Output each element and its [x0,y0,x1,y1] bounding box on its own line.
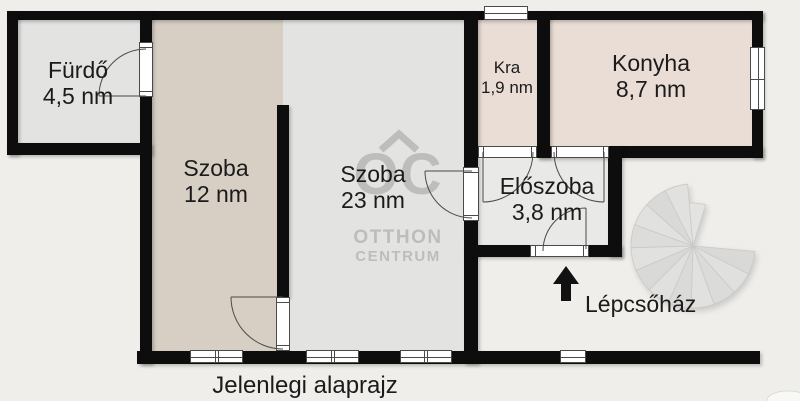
window-stairwell [560,350,586,363]
door-szoba12-szoba23 [276,297,290,351]
room-name: Kra [494,58,520,78]
room-area: 4,5 nm [43,83,113,109]
room-name: Előszoba [500,173,595,199]
door-furdo [139,42,153,97]
watermark-line2: CENTRUM [338,248,458,265]
room-name: Konyha [612,50,690,76]
room-area: 12 nm [184,181,248,207]
wall-top [7,11,763,20]
room-area: 3,8 nm [512,199,582,225]
corner-artifact [767,391,800,401]
floor-plan: OC OTTHON CENTRUM [0,0,800,401]
room-name: Szoba [340,161,405,187]
room-name: Fürdő [48,57,108,83]
door-konyha [551,146,609,158]
window-szoba23-left [306,350,359,363]
room-label-szoba23: Szoba 23 nm [298,161,448,213]
room-name: Szoba [183,155,248,181]
window-szoba23-right [400,350,452,363]
window-szoba12 [190,350,243,363]
window-kra [484,6,528,20]
window-konyha [750,47,765,110]
door-entrance [530,245,589,257]
room-area: 1,9 nm [481,78,533,98]
entrance-arrow-icon [553,266,579,301]
room-area: 23 nm [341,187,405,213]
stairwell-label: Lépcsőház [585,291,696,318]
room-label-szoba12: Szoba 12 nm [151,155,281,207]
room-label-eloszoba: Előszoba 3,8 nm [477,173,617,225]
room-area: 8,7 nm [616,76,686,102]
wall-furdo-bottom [7,143,152,155]
spiral-staircase [631,184,755,308]
room-label-furdo: Fürdő 4,5 nm [17,57,139,109]
watermark-line1: OTTHON [338,227,458,249]
door-kra [478,146,537,158]
room-label-konyha: Konyha 8,7 nm [571,50,731,102]
plan-caption: Jelenlegi alaprajz [150,372,460,400]
room-label-kra: Kra 1,9 nm [475,58,539,97]
